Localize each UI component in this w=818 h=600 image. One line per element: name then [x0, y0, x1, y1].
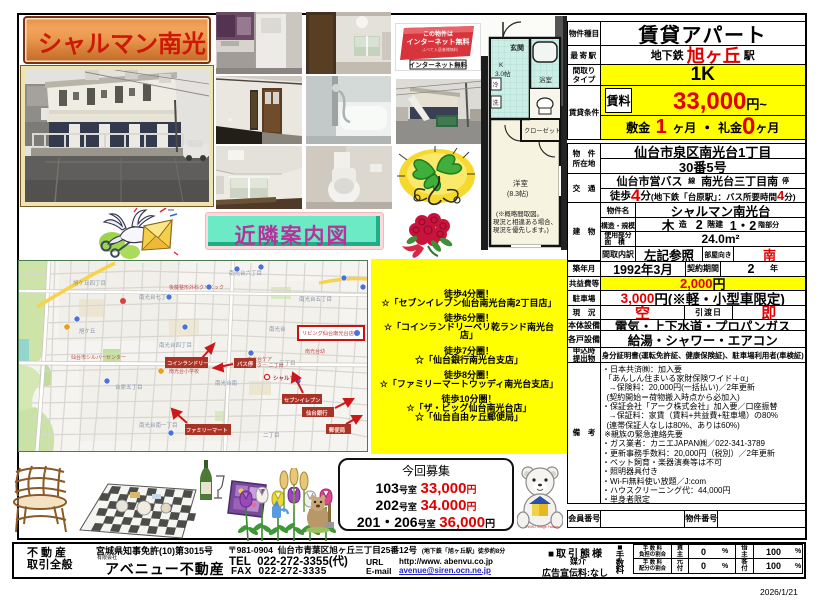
svg-text:玄関: 玄関	[510, 43, 524, 52]
svg-text:仙台市シルバーセンター: 仙台市シルバーセンター	[71, 354, 126, 361]
svg-text:旭ケ丘四丁目: 旭ケ丘四丁目	[73, 279, 106, 287]
svg-text:浴室: 浴室	[539, 75, 553, 84]
svg-text:仙台銀行: 仙台銀行	[306, 409, 328, 417]
svg-text:リビング仙台南光台店と: リビング仙台南光台店と	[302, 329, 359, 337]
svg-text:洗: 洗	[493, 99, 499, 107]
svg-text:冷: 冷	[493, 81, 499, 89]
svg-text:郵便局: 郵便局	[329, 426, 346, 434]
svg-text:コインランドリー: コインランドリー	[167, 360, 209, 367]
svg-text:洋室: 洋室	[513, 178, 528, 188]
svg-text:バス停: バス停	[237, 360, 254, 368]
svg-text:南光台五丁目: 南光台五丁目	[299, 295, 332, 303]
svg-text:二丁目: 二丁目	[263, 432, 280, 439]
svg-text:南光台: 南光台	[269, 325, 286, 333]
svg-text:(8.3帖): (8.3帖)	[507, 189, 528, 198]
svg-text:旭ケ丘: 旭ケ丘	[79, 327, 96, 335]
svg-text:ファミリーマート: ファミリーマート	[186, 427, 228, 434]
svg-text:この物件は: この物件は	[423, 30, 453, 38]
svg-text:インターネット無料: インターネット無料	[407, 37, 470, 46]
svg-text:3.0帖: 3.0帖	[495, 69, 511, 78]
svg-text:台原五丁目: 台原五丁目	[115, 383, 143, 391]
svg-text:南光台南一丁目: 南光台南一丁目	[139, 421, 178, 429]
svg-text:クローゼット: クローゼット	[524, 127, 561, 135]
svg-text:現況を優先します。): 現況を優先します。)	[493, 225, 549, 234]
svg-text:南光台幼: 南光台幼	[305, 348, 325, 355]
svg-text:(※概略間取図。: (※概略間取図。	[496, 209, 543, 218]
svg-text:現況と相違ある場合、: 現況と相違ある場合、	[493, 217, 557, 226]
svg-text:後藤整形外科クリニック: 後藤整形外科クリニック	[169, 284, 224, 291]
svg-text:インターネット無料: インターネット無料	[409, 60, 468, 69]
svg-text:南光台四丁目: 南光台四丁目	[159, 341, 192, 349]
svg-text:南光台南: 南光台南	[215, 379, 238, 387]
svg-text:©WWJ Image Factory: ©WWJ Image Factory	[525, 525, 560, 529]
svg-text:セブンイレブン: セブンイレブン	[284, 396, 320, 404]
svg-text:K: K	[499, 62, 504, 69]
svg-text:ふべて入居者様無料: ふべて入居者様無料	[422, 46, 458, 52]
svg-text:南光台小学校: 南光台小学校	[169, 368, 199, 375]
